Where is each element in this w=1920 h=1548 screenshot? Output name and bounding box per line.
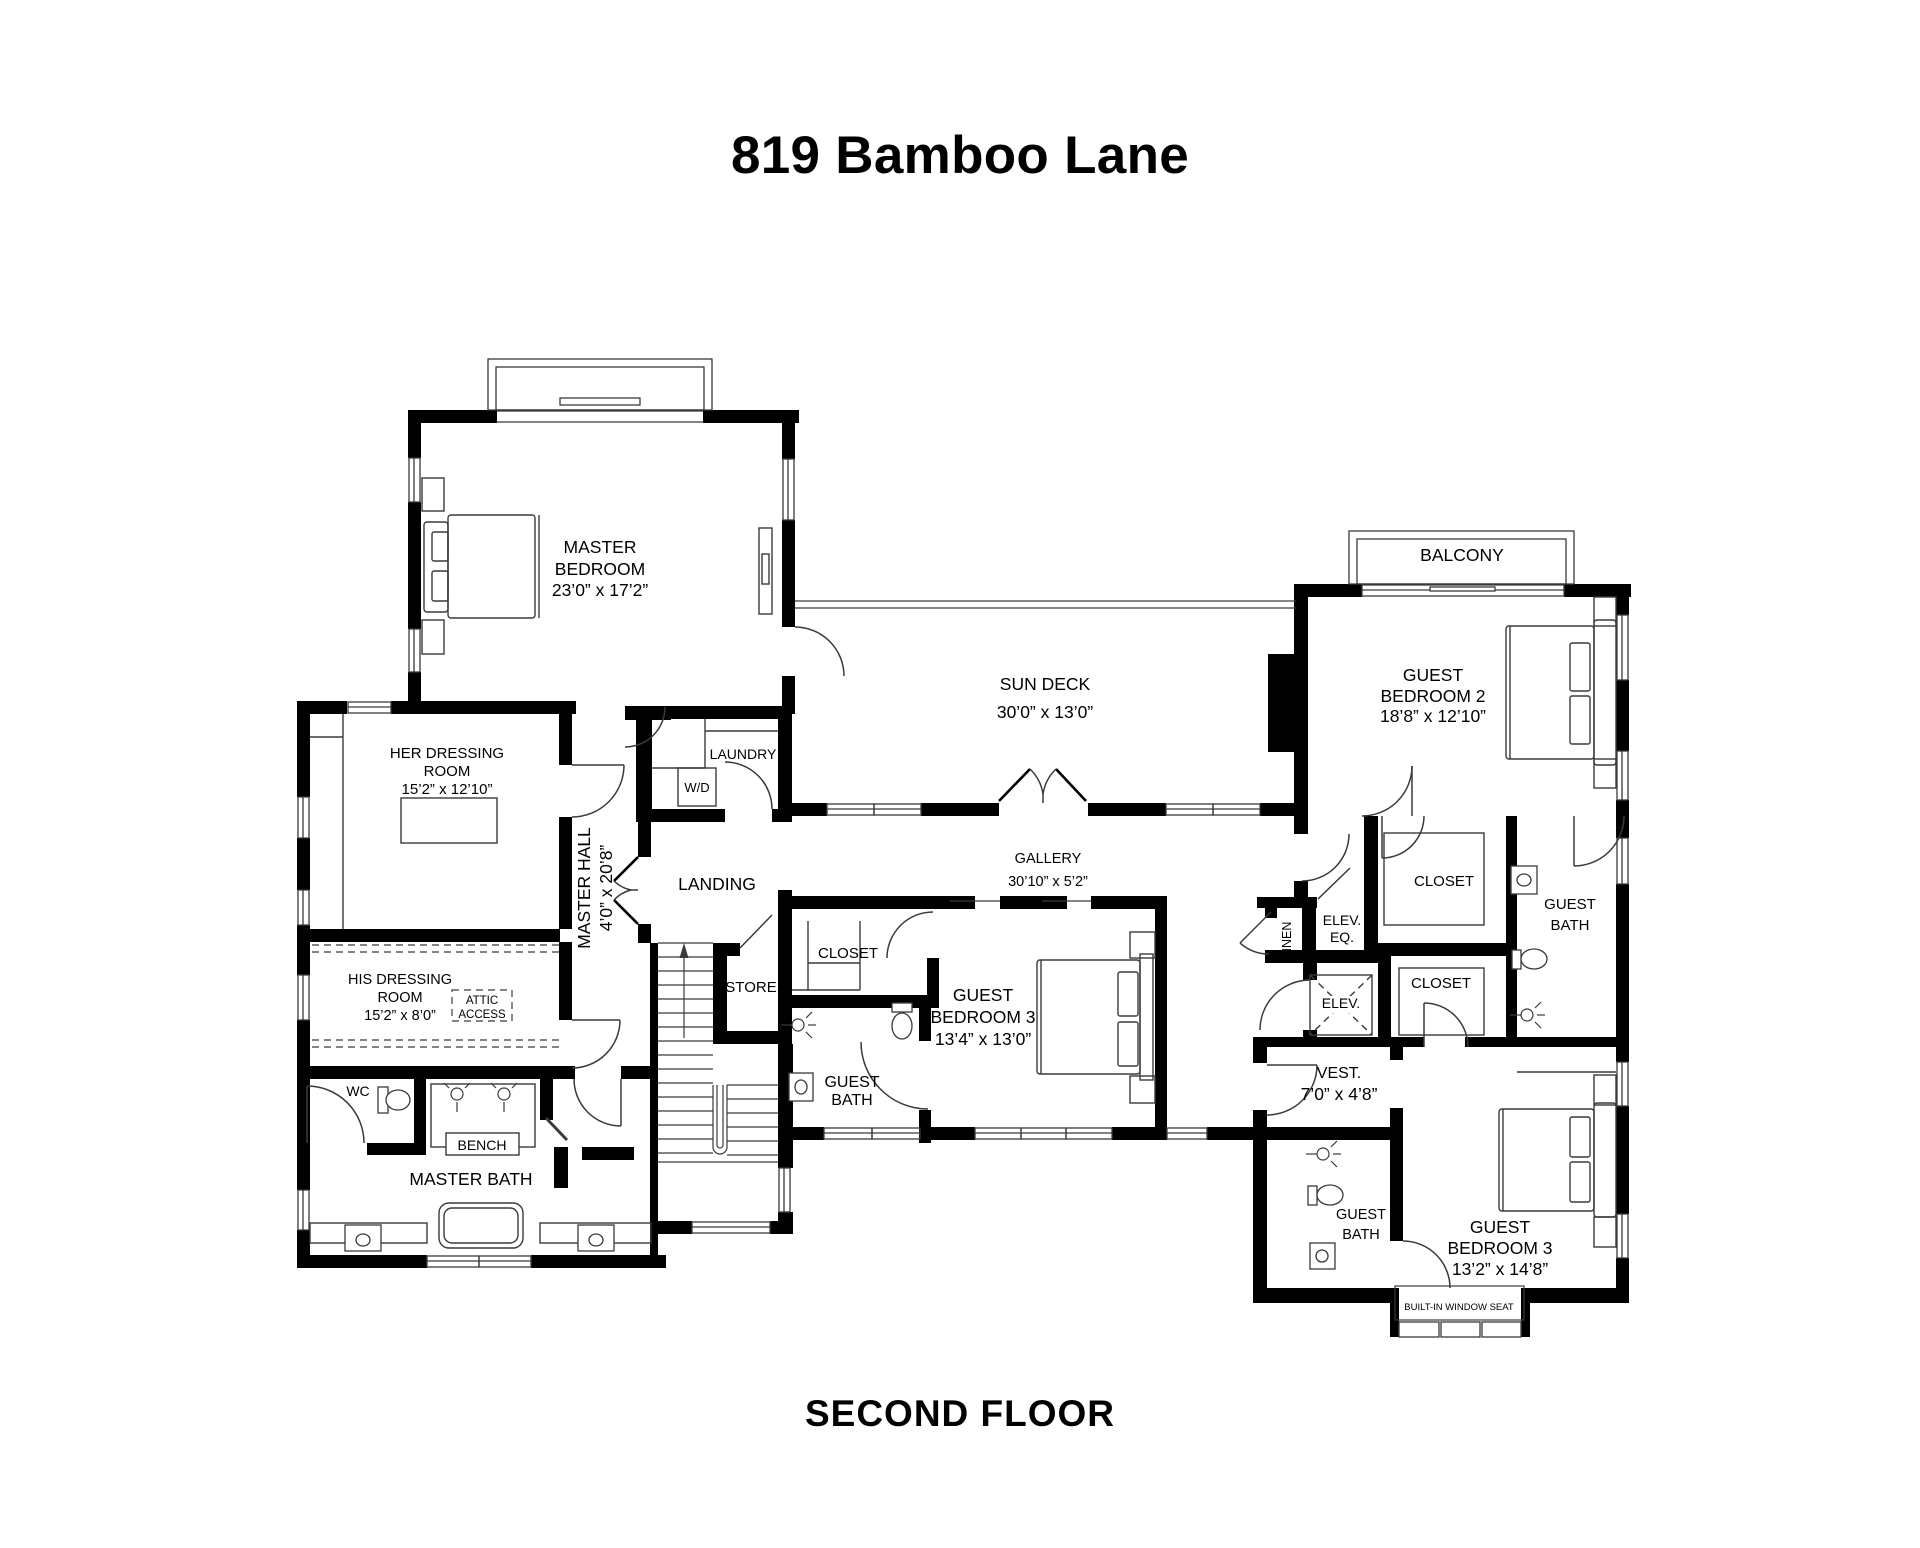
svg-text:CLOSET: CLOSET [818, 945, 878, 962]
svg-text:GUEST: GUEST [1336, 1207, 1386, 1223]
svg-text:BATH: BATH [1342, 1227, 1380, 1243]
svg-text:13’4” x 13’0”: 13’4” x 13’0” [935, 1029, 1031, 1049]
svg-text:BATH: BATH [1551, 917, 1590, 934]
svg-text:EQ.: EQ. [1330, 929, 1354, 945]
svg-text:MASTER BATH: MASTER BATH [409, 1169, 532, 1189]
svg-text:ATTIC: ATTIC [466, 995, 498, 1007]
svg-text:ELEV.: ELEV. [1322, 995, 1360, 1011]
svg-text:30’10” x 5’2”: 30’10” x 5’2” [1008, 874, 1088, 890]
svg-text:LAUNDRY: LAUNDRY [710, 746, 777, 762]
svg-text:4’0” x 20’8”: 4’0” x 20’8” [596, 845, 616, 932]
svg-text:30’0” x 13’0”: 30’0” x 13’0” [997, 702, 1093, 722]
svg-text:7’0” x 4’8”: 7’0” x 4’8” [1301, 1084, 1378, 1104]
svg-text:LINEN: LINEN [1280, 922, 1294, 959]
svg-text:VEST.: VEST. [1317, 1065, 1361, 1082]
svg-text:GUEST: GUEST [824, 1074, 879, 1091]
svg-text:BENCH: BENCH [457, 1137, 506, 1153]
svg-text:BEDROOM 3: BEDROOM 3 [1447, 1238, 1552, 1258]
svg-text:BEDROOM 3: BEDROOM 3 [930, 1007, 1035, 1027]
svg-text:ROOM: ROOM [377, 990, 422, 1006]
svg-text:BEDROOM: BEDROOM [555, 559, 645, 579]
svg-text:W/D: W/D [684, 780, 709, 795]
svg-text:18’8” x 12’10”: 18’8” x 12’10” [1380, 706, 1486, 726]
svg-text:HER DRESSING: HER DRESSING [390, 745, 504, 762]
svg-text:SECOND FLOOR: SECOND FLOOR [805, 1393, 1115, 1434]
svg-text:ROOM: ROOM [424, 763, 471, 780]
svg-text:BALCONY: BALCONY [1420, 545, 1504, 565]
svg-text:BUILT-IN WINDOW SEAT: BUILT-IN WINDOW SEAT [1404, 1302, 1514, 1313]
svg-text:GALLERY: GALLERY [1015, 851, 1082, 867]
svg-text:15’2” x 8’0”: 15’2” x 8’0” [364, 1008, 436, 1024]
svg-text:15’2” x 12’10”: 15’2” x 12’10” [402, 781, 493, 798]
svg-text:MASTER: MASTER [564, 537, 637, 557]
svg-text:GUEST: GUEST [1403, 665, 1464, 685]
svg-text:23’0” x 17’2”: 23’0” x 17’2” [552, 580, 648, 600]
svg-text:HIS DRESSING: HIS DRESSING [348, 972, 452, 988]
svg-text:819 Bamboo Lane: 819 Bamboo Lane [731, 126, 1189, 185]
svg-text:WC: WC [346, 1083, 369, 1099]
svg-text:GUEST: GUEST [953, 985, 1014, 1005]
svg-text:GUEST: GUEST [1544, 896, 1596, 913]
svg-text:LANDING: LANDING [678, 874, 756, 894]
svg-text:GUEST: GUEST [1470, 1217, 1531, 1237]
svg-text:MASTER HALL: MASTER HALL [574, 827, 594, 949]
svg-text:BATH: BATH [831, 1092, 872, 1109]
svg-text:CLOSET: CLOSET [1414, 873, 1474, 890]
svg-text:SUN DECK: SUN DECK [1000, 674, 1091, 694]
svg-text:CLOSET: CLOSET [1411, 975, 1471, 992]
svg-text:BEDROOM 2: BEDROOM 2 [1380, 686, 1485, 706]
svg-text:13’2” x 14’8”: 13’2” x 14’8” [1452, 1259, 1548, 1279]
svg-text:STORE: STORE [725, 979, 776, 996]
svg-text:ELEV.: ELEV. [1323, 912, 1361, 928]
svg-text:ACCESS: ACCESS [458, 1009, 506, 1021]
